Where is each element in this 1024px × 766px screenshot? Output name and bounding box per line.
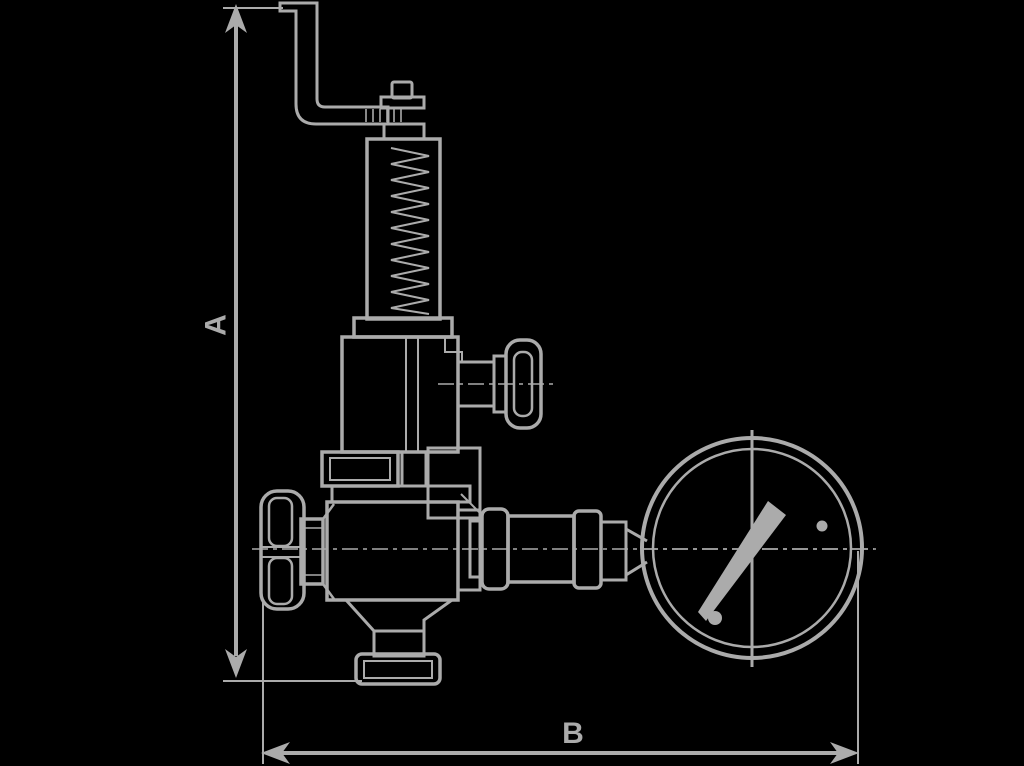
gauge-pin-lower-left	[708, 611, 722, 625]
relief-valve	[261, 3, 647, 684]
valve-technical-drawing: A B	[0, 0, 1024, 766]
dimension-a-label: A	[200, 314, 233, 336]
gauge-needle	[698, 501, 786, 621]
bottom-outlet-flange	[356, 654, 440, 684]
drawing-canvas: A B	[0, 0, 1024, 766]
handwheel-inner-bottom	[269, 558, 292, 604]
inlet-handwheel	[261, 491, 304, 609]
gauge-pin-right	[817, 521, 828, 532]
stem-threads	[366, 109, 401, 122]
stem-packing-nut	[402, 452, 426, 486]
spring-coil	[391, 148, 429, 314]
adjustment-lever	[280, 3, 388, 124]
body-bottom-slant-right	[424, 600, 452, 631]
pressure-gauge	[642, 430, 874, 667]
handwheel-inner-top	[269, 498, 292, 546]
body-bottom-slant-left	[346, 600, 374, 631]
gland-nut	[384, 124, 424, 139]
union-nut-facet	[330, 458, 390, 480]
center-lines	[252, 384, 876, 549]
valve-upper-body	[342, 337, 458, 452]
body-right-column	[428, 448, 480, 518]
dimension-b-label: B	[562, 717, 584, 750]
body-top-plate	[332, 486, 470, 502]
bottom-flange-inner	[364, 661, 432, 678]
bonnet-flange	[354, 318, 452, 337]
gauge-adapter	[601, 522, 626, 580]
